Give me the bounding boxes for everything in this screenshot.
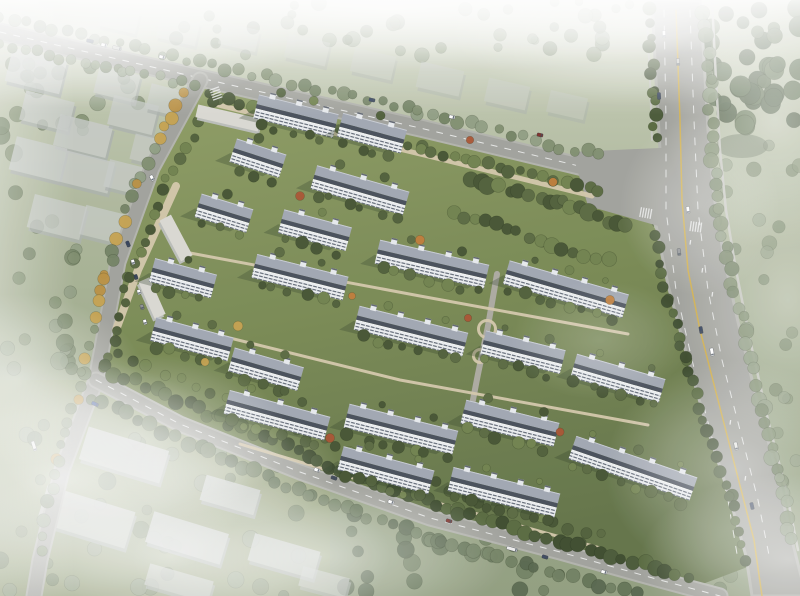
aerial-rendering: Aerial rendering of a residential develo… xyxy=(0,0,800,596)
rendering-stage: Aerial rendering of a residential develo… xyxy=(0,0,800,596)
global-veil xyxy=(0,0,800,596)
